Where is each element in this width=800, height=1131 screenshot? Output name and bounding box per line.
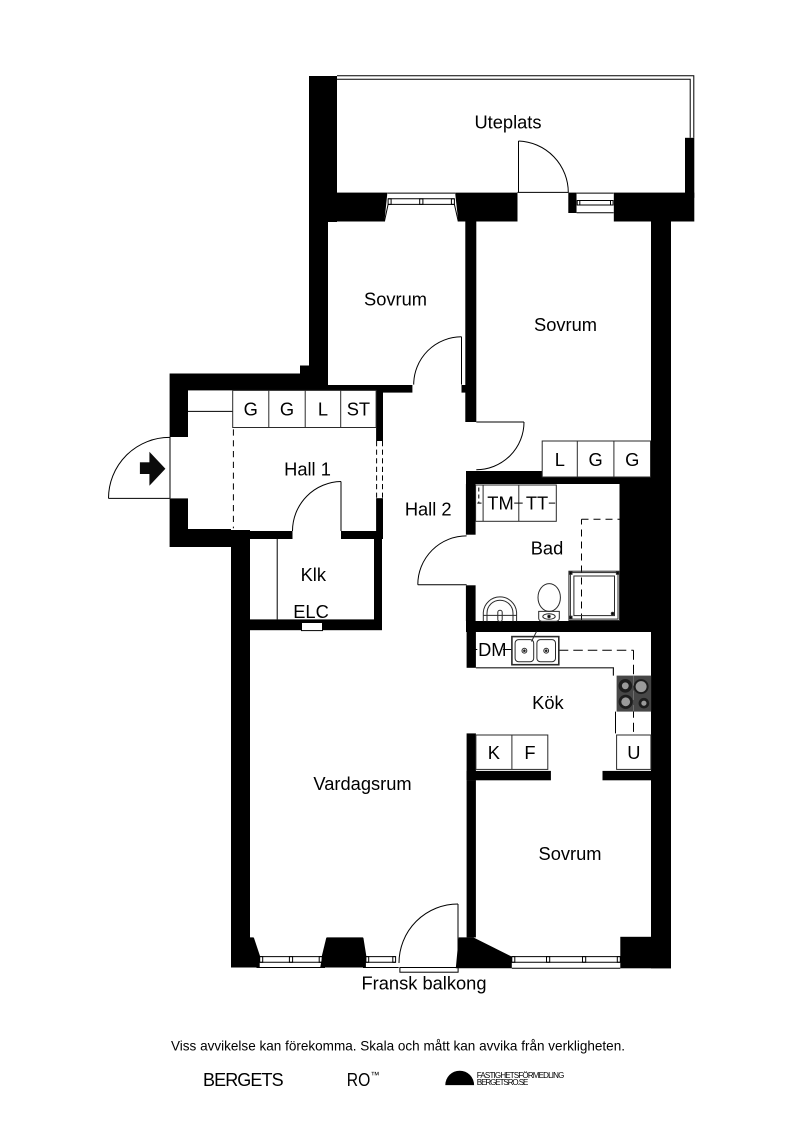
svg-text:RO: RO — [347, 1070, 371, 1090]
svg-text:Kök: Kök — [532, 692, 564, 713]
svg-text:Bad: Bad — [531, 538, 564, 559]
svg-text:L: L — [318, 399, 328, 420]
svg-text:G: G — [280, 399, 294, 420]
svg-text:ST: ST — [347, 399, 370, 420]
svg-text:™: ™ — [371, 1070, 380, 1080]
svg-text:Hall 2: Hall 2 — [405, 499, 452, 520]
svg-text:Sovrum: Sovrum — [539, 843, 602, 864]
svg-text:Viss avvikelse kan förekomma.: Viss avvikelse kan förekomma. Skala och … — [171, 1038, 625, 1054]
svg-text:DM: DM — [478, 639, 506, 660]
svg-text:TT: TT — [526, 493, 548, 514]
svg-text:BERGETSRO.SE: BERGETSRO.SE — [477, 1078, 529, 1087]
svg-text:Sovrum: Sovrum — [534, 314, 597, 335]
svg-text:Hall 1: Hall 1 — [284, 458, 331, 479]
svg-text:BERGETS: BERGETS — [203, 1070, 284, 1090]
svg-text:Uteplats: Uteplats — [474, 112, 541, 133]
svg-text:F: F — [524, 742, 535, 763]
svg-text:G: G — [625, 449, 639, 470]
svg-text:G: G — [588, 449, 602, 470]
svg-text:L: L — [555, 449, 565, 470]
svg-text:Fransk balkong: Fransk balkong — [362, 973, 487, 994]
svg-text:Vardagsrum: Vardagsrum — [313, 773, 411, 794]
svg-text:U: U — [627, 742, 640, 763]
svg-text:Klk: Klk — [301, 564, 327, 585]
svg-text:K: K — [488, 742, 500, 763]
svg-text:G: G — [244, 399, 258, 420]
svg-text:Sovrum: Sovrum — [364, 288, 427, 309]
svg-text:TM: TM — [487, 493, 513, 514]
svg-text:ELC: ELC — [293, 601, 329, 622]
